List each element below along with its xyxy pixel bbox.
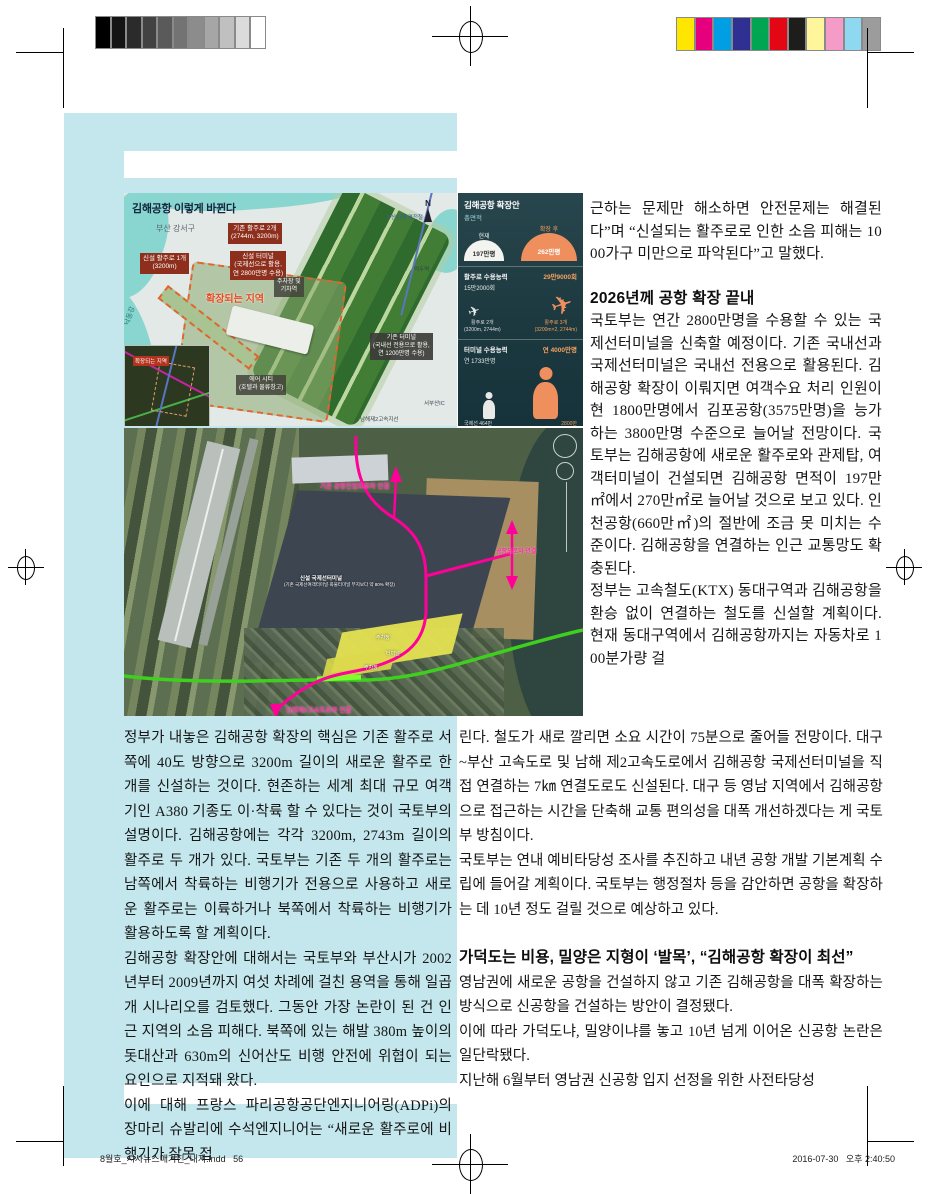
lightrail-label: 부산김해 경전철 (386, 213, 423, 221)
runway-current-sub: 활주로 2개(3200m, 2744m) (464, 320, 501, 334)
slug-filename: 8월호_시사뉴스매거진_내지.indd 56 (100, 1152, 243, 1165)
ic-label: 서부산IC (424, 399, 445, 407)
paragraph: 근하는 문제만 해소하면 안전문제는 해결된다”며 “신설되는 활주로로 인한 … (590, 198, 882, 266)
terminal-label: 터미널 (386, 650, 400, 657)
grayscale-calibration-bar (95, 16, 266, 49)
terminal-after-sub: 2800만1200만 (561, 421, 577, 427)
calibration-swatch (713, 17, 732, 51)
column-right-top: 근하는 문제만 해소하면 안전문제는 해결된다”며 “신설되는 활주로로 인한 … (590, 198, 882, 670)
column-bottom-left: 정부가 내놓은 김해공항 확장의 핵심은 기존 활주로 서쪽에 40도 방향으로… (124, 726, 452, 1167)
aircity-label: 에어 시티(호텔과 물류창고) (236, 375, 286, 395)
new-terminal-sublabel: (기존 국제선여객터미널·화물터미널 부지보다 약 80% 확장) (284, 582, 404, 588)
area-section-label: 총면적 (464, 212, 577, 222)
existing-terminal-label: 기존 터미널(국내선 전용으로 활용,연 1200만명 수용) (370, 333, 433, 360)
paragraph: 지난해 6월부터 영남권 신공항 입지 선정을 위한 사전타당성 (459, 1069, 883, 1094)
calibration-swatch (676, 17, 695, 51)
calibration-swatch (788, 17, 807, 51)
compass-icon: N (424, 199, 432, 222)
satellite-photo-figure: 기존 공항진입도로와 연결 공항도로와 연결 남해제2고속도로와 연결 신설 국… (124, 428, 583, 716)
parking-station-label: 주차장 및기차역 (274, 277, 304, 297)
calibration-swatch (825, 17, 844, 51)
calibration-swatch (204, 16, 220, 49)
calibration-swatch (695, 17, 714, 51)
calibration-swatch (111, 16, 127, 49)
magazine-page: 김해공항 이렇게 바뀐다 부산 강서구 낙동강 기존 활주로 2개(2744m,… (0, 0, 930, 1194)
paragraph: 이에 따라 가덕도냐, 밀양이냐를 놓고 10년 넘게 이어온 신공항 논란은 … (459, 1020, 883, 1069)
existing-runways-label: 기존 활주로 2개(2744m, 3200m) (228, 223, 282, 244)
calibration-swatch (95, 16, 111, 49)
top-white-notch (124, 151, 457, 178)
paragraph: 정부가 내놓은 김해공항 확장의 핵심은 기존 활주로 서쪽에 40도 방향으로… (124, 726, 452, 947)
expansion-area-label: 확장되는 지역 (206, 290, 264, 305)
calibration-swatch (219, 16, 235, 49)
runway-section-label: 활주로 수용능력 (464, 271, 508, 281)
terminal-current-sub: 국제선 464만국내선 1269만 (464, 421, 495, 427)
map-inset-thumbnail: 확장되는 지역 (124, 345, 210, 426)
calibration-swatch (173, 16, 189, 49)
calibration-swatch (751, 17, 770, 51)
calibration-swatch (188, 16, 204, 49)
section-heading: 가덕도는 비용, 밀양은 지형이 ‘발목’, “김해공항 확장이 최선” (459, 946, 883, 971)
new-terminal-label: 신설 국제선터미널 (300, 574, 342, 582)
district-label: 부산 강서구 (156, 223, 195, 234)
person-icon (533, 367, 558, 419)
terminal-after-value: 연 4000만명 (543, 344, 577, 354)
airport-map-figure: 김해공항 이렇게 바뀐다 부산 강서구 낙동강 기존 활주로 2개(2744m,… (124, 193, 457, 426)
map-title: 김해공항 이렇게 바뀐다 (132, 200, 236, 216)
area-after-value: 262만평 (521, 233, 577, 261)
paragraph: 린다. 철도가 새로 깔리면 소요 시간이 75분으로 줄어들 전망이다. 대구… (459, 726, 883, 849)
column-bottom-right: 린다. 철도가 새로 깔리면 소요 시간이 75분으로 줄어들 전망이다. 대구… (459, 726, 883, 1093)
plane-icon: ✈ (466, 303, 481, 320)
road-label: 남해제2고속지선 (360, 415, 398, 423)
calibration-swatch (157, 16, 173, 49)
slug-timestamp: 2016-07-30 오후 2:40:50 (792, 1152, 895, 1165)
area-current-label: 현재 (464, 231, 504, 240)
section-heading: 2026년께 공항 확장 끝내 (590, 288, 882, 311)
scale-indicator-icon (551, 434, 577, 524)
area-current-value: 197만평 (464, 240, 504, 261)
infographic-title: 김해공항 확장안 (464, 199, 577, 211)
calibration-swatch (235, 16, 251, 49)
color-calibration-bar (676, 17, 881, 51)
paragraph: 국토부는 연간 2800만명을 수용할 수 있는 국제선터미널을 신축할 예정이… (590, 310, 882, 580)
new-runway-label: 신설 활주로 1개(3200m) (140, 253, 189, 274)
calibration-swatch (769, 17, 788, 51)
parking-label: 주차장 (364, 664, 378, 671)
paragraph: 김해공항 확장안에 대해서는 국토부와 부산시가 2002년부터 2009년까지… (124, 947, 452, 1094)
calibration-swatch (844, 17, 863, 51)
paragraph: 정부는 고속철도(KTX) 동대구역과 김해공항을 환승 없이 연결하는 철도를… (590, 580, 882, 670)
terminal-current-value: 연 1733만명 (464, 356, 577, 365)
slug-page-number: 56 (233, 1154, 243, 1164)
calibration-swatch (250, 16, 266, 49)
person-icon (483, 392, 495, 419)
paragraph: 영남권에 새로운 공항을 건설하지 않고 기존 김해공항을 대폭 확장하는 방식… (459, 971, 883, 1020)
route-label-right: 공항도로와 연결 (496, 546, 536, 555)
paragraph: 국토부는 연내 예비타당성 조사를 추진하고 내년 공항 개발 기본계획 수립에… (459, 849, 883, 923)
route-label-top: 기존 공항진입도로와 연결 (320, 480, 389, 490)
inset-expansion-label: 확장되는 지역 (133, 356, 169, 366)
route-overlay (124, 428, 583, 716)
area-after-label: 확장 후 (521, 224, 577, 233)
calibration-swatch (862, 17, 881, 51)
route-label-bottom: 남해제2고속도로와 연결 (286, 704, 351, 714)
runway-after-value: 29만9000회 (543, 271, 577, 281)
plane-icon: ✈ (548, 289, 577, 320)
calibration-swatch (126, 16, 142, 49)
calibration-swatch (142, 16, 158, 49)
calibration-swatch (806, 17, 825, 51)
parking-label: 주차장 (376, 634, 390, 641)
terminal-section-label: 터미널 수용능력 (464, 344, 508, 354)
calibration-swatch (732, 17, 751, 51)
expansion-stats-infographic: 김해공항 확장안 총면적 현재 197만평 확장 후 262만평 활주로 수용능… (458, 193, 583, 426)
station-label: 덕두역 (414, 265, 429, 273)
new-terminal-label: 신설 터미널(국제선으로 활용,연 2800만명 수용) (230, 251, 286, 280)
